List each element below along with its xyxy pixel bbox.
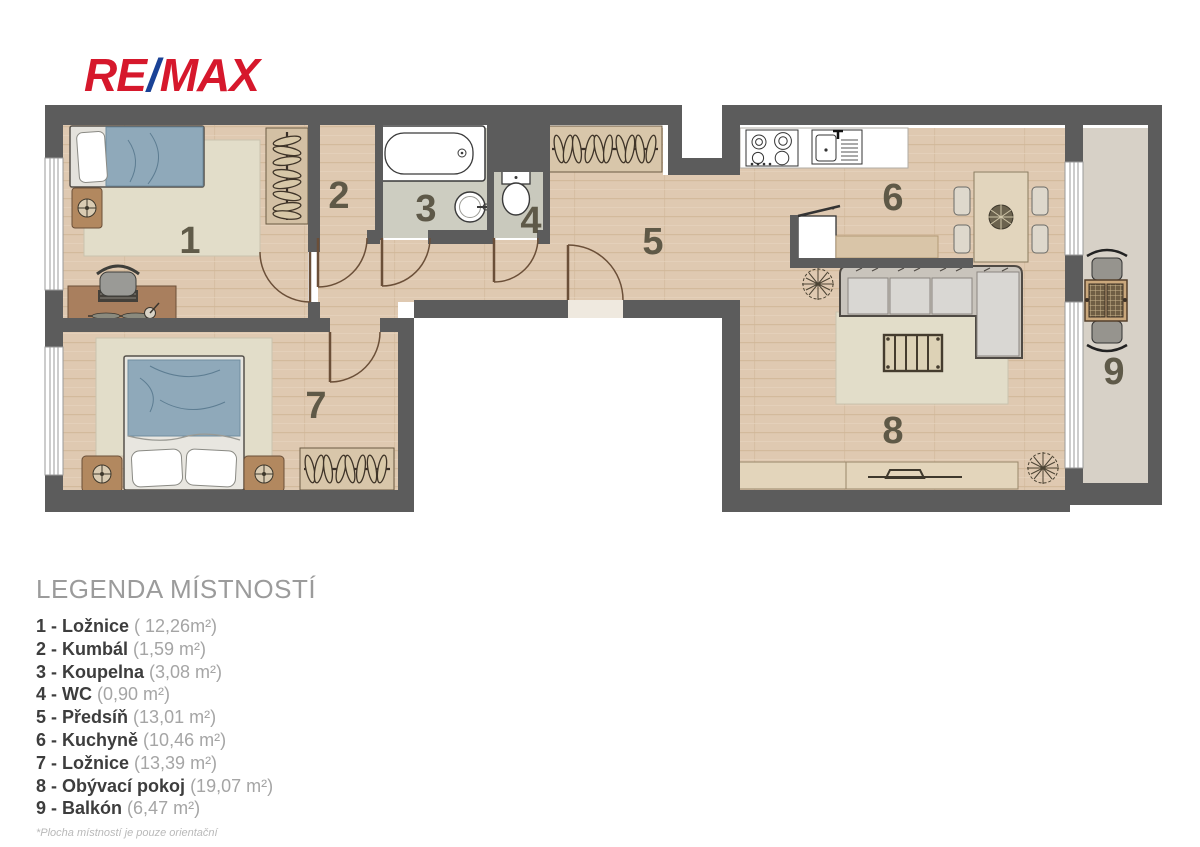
legend-item-9: 9 - Balkón (6,47 m²): [36, 797, 456, 820]
room-legend: LEGENDA MÍSTNOSTÍ 1 - Ložnice ( 12,26m²)…: [36, 574, 456, 839]
entrance-doorway: [568, 300, 623, 318]
wardrobe: [266, 128, 308, 224]
nightstand: [82, 456, 122, 492]
room-number-7: 7: [305, 385, 326, 427]
legend-item-2: 2 - Kumbál (1,59 m²): [36, 638, 456, 661]
room-number-6: 6: [882, 177, 903, 219]
legend-item-7: 7 - Ložnice (13,39 m²): [36, 752, 456, 775]
room-5-floor-b: [663, 175, 740, 243]
clothes-rack: [300, 448, 394, 490]
legend-title: LEGENDA MÍSTNOSTÍ: [36, 574, 456, 605]
legend-footnote: *Plocha místností je pouze orientační: [36, 827, 456, 839]
legend-item-3: 3 - Koupelna (3,08 m²): [36, 661, 456, 684]
side-table: [72, 188, 102, 228]
window: [1065, 162, 1083, 255]
legend-item-1: 1 - Ložnice ( 12,26m²): [36, 615, 456, 638]
tv-console: [738, 462, 1018, 489]
bathtub: [377, 126, 485, 181]
coffee-table: [884, 335, 942, 371]
window: [45, 347, 63, 475]
double-bed: [124, 356, 244, 490]
room-number-2: 2: [328, 175, 349, 217]
window: [45, 158, 63, 290]
room-number-9: 9: [1103, 351, 1124, 393]
floorplan-page: RE/MAX: [0, 0, 1200, 847]
stove: [746, 130, 798, 166]
room-number-5: 5: [642, 221, 663, 263]
coat-rack: [548, 126, 662, 172]
single-bed: [70, 126, 204, 187]
room-number-3: 3: [415, 188, 436, 230]
balcony-table: [1085, 280, 1127, 321]
legend-item-4: 4 - WC (0,90 m²): [36, 683, 456, 706]
nightstand: [244, 456, 284, 492]
floor-plan: 1 2 3 4 5 6 7 8 9: [0, 0, 1200, 560]
room-number-8: 8: [882, 410, 903, 452]
legend-item-8: 8 - Obývací pokoj (19,07 m²): [36, 775, 456, 798]
legend-item-6: 6 - Kuchyně (10,46 m²): [36, 729, 456, 752]
legend-item-5: 5 - Předsíň (13,01 m²): [36, 706, 456, 729]
room-number-1: 1: [179, 220, 200, 262]
kitchen-sink: [812, 130, 862, 164]
balcony-door-window: [1065, 302, 1083, 468]
room-number-4: 4: [520, 200, 541, 242]
peninsula-counter: [836, 236, 938, 258]
